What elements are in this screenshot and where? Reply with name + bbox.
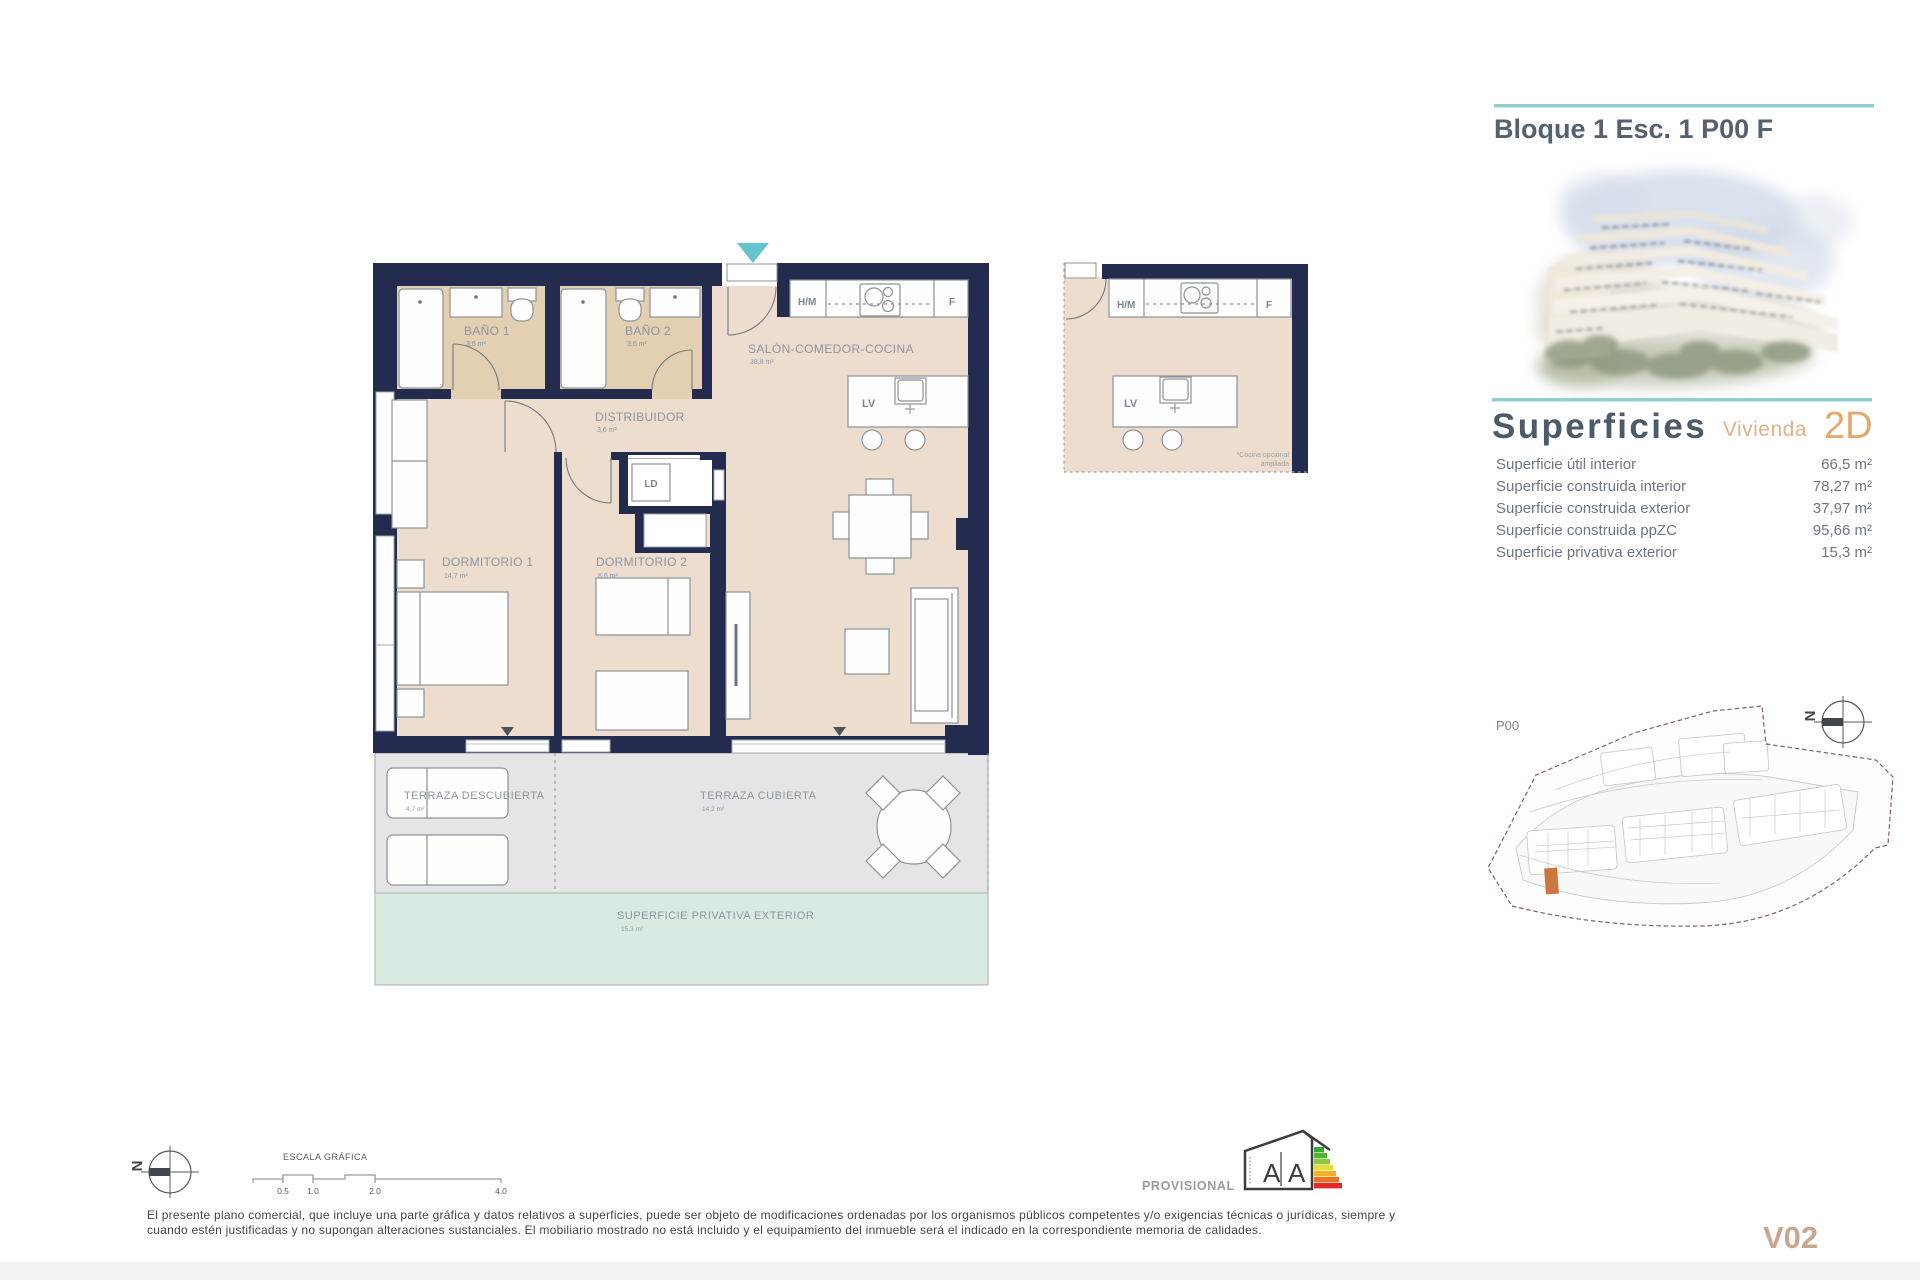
svg-text:N: N [129, 1161, 146, 1172]
svg-text:15,3 m²: 15,3 m² [1821, 544, 1872, 561]
svg-text:ESCALA GRÁFICA: ESCALA GRÁFICA [283, 1152, 368, 1162]
svg-text:Superficie construida interior: Superficie construida interior [1496, 478, 1686, 495]
svg-text:8,6 m²: 8,6 m² [598, 573, 619, 580]
svg-text:0.5: 0.5 [277, 1186, 289, 1196]
svg-text:Superficie privativa exterior: Superficie privativa exterior [1496, 544, 1677, 561]
svg-text:4.0: 4.0 [495, 1186, 507, 1196]
svg-text:4,7 m²: 4,7 m² [406, 806, 425, 813]
svg-text:Superficie construida ppZC: Superficie construida ppZC [1496, 522, 1677, 539]
svg-text:*Cocina opcional: *Cocina opcional [1236, 452, 1289, 459]
svg-text:cuando estén justificadas y no: cuando estén justificadas y no supongan … [147, 1223, 1262, 1237]
svg-text:El presente plano comercial, q: El presente plano comercial, que incluye… [147, 1208, 1395, 1222]
svg-text:Superficie construida exterior: Superficie construida exterior [1496, 500, 1690, 517]
svg-text:78,27 m²: 78,27 m² [1813, 478, 1872, 495]
svg-text:A: A [1263, 1158, 1281, 1188]
svg-text:TERRAZA CUBIERTA: TERRAZA CUBIERTA [700, 790, 817, 802]
svg-text:2.0: 2.0 [369, 1186, 381, 1196]
svg-text:SUPERFICIE PRIVATIVA EXTERIOR: SUPERFICIE PRIVATIVA EXTERIOR [617, 910, 814, 922]
svg-text:BAÑO 1: BAÑO 1 [464, 324, 510, 338]
svg-text:DORMITORIO 2: DORMITORIO 2 [596, 555, 687, 569]
svg-text:V02: V02 [1763, 1220, 1818, 1255]
svg-text:F: F [1266, 300, 1272, 311]
svg-text:ampliada: ampliada [1261, 461, 1290, 468]
svg-text:14,7 m²: 14,7 m² [444, 573, 468, 580]
svg-text:37,97 m²: 37,97 m² [1813, 500, 1872, 517]
svg-text:2D: 2D [1824, 405, 1873, 447]
svg-text:SALÓN-COMEDOR-COCINA: SALÓN-COMEDOR-COCINA [748, 341, 914, 356]
svg-text:Superficie útil interior: Superficie útil interior [1496, 456, 1636, 473]
svg-text:H/M: H/M [798, 297, 816, 308]
svg-text:14,2 m²: 14,2 m² [702, 806, 725, 813]
svg-text:15,3 m²: 15,3 m² [621, 926, 644, 933]
svg-text:95,66 m²: 95,66 m² [1813, 522, 1872, 539]
svg-text:3,6 m²: 3,6 m² [627, 341, 648, 348]
svg-text:DORMITORIO 1: DORMITORIO 1 [442, 555, 533, 569]
svg-text:A: A [1288, 1158, 1306, 1188]
svg-text:Bloque 1 Esc. 1 P00 F: Bloque 1 Esc. 1 P00 F [1494, 114, 1773, 144]
svg-text:DISTRIBUIDOR: DISTRIBUIDOR [595, 410, 685, 424]
svg-text:3,6 m²: 3,6 m² [466, 341, 487, 348]
svg-text:TERRAZA DESCUBIERTA: TERRAZA DESCUBIERTA [404, 790, 545, 802]
svg-text:N: N [1802, 711, 1819, 722]
svg-text:Superficies: Superficies [1492, 407, 1707, 446]
svg-text:F: F [949, 297, 955, 308]
svg-text:LV: LV [1124, 398, 1138, 410]
svg-text:PROVISIONAL: PROVISIONAL [1142, 1179, 1235, 1193]
svg-text:66,5 m²: 66,5 m² [1821, 456, 1872, 473]
svg-text:H/M: H/M [1117, 300, 1135, 311]
svg-text:P00: P00 [1496, 718, 1519, 733]
svg-text:Vivienda: Vivienda [1723, 418, 1807, 441]
svg-text:BAÑO 2: BAÑO 2 [625, 324, 671, 338]
svg-text:38,8 m²: 38,8 m² [750, 359, 774, 366]
svg-text:LV: LV [862, 398, 876, 410]
svg-text:1.0: 1.0 [307, 1186, 319, 1196]
svg-text:3,6 m²: 3,6 m² [597, 427, 618, 434]
svg-text:LD: LD [644, 479, 657, 490]
